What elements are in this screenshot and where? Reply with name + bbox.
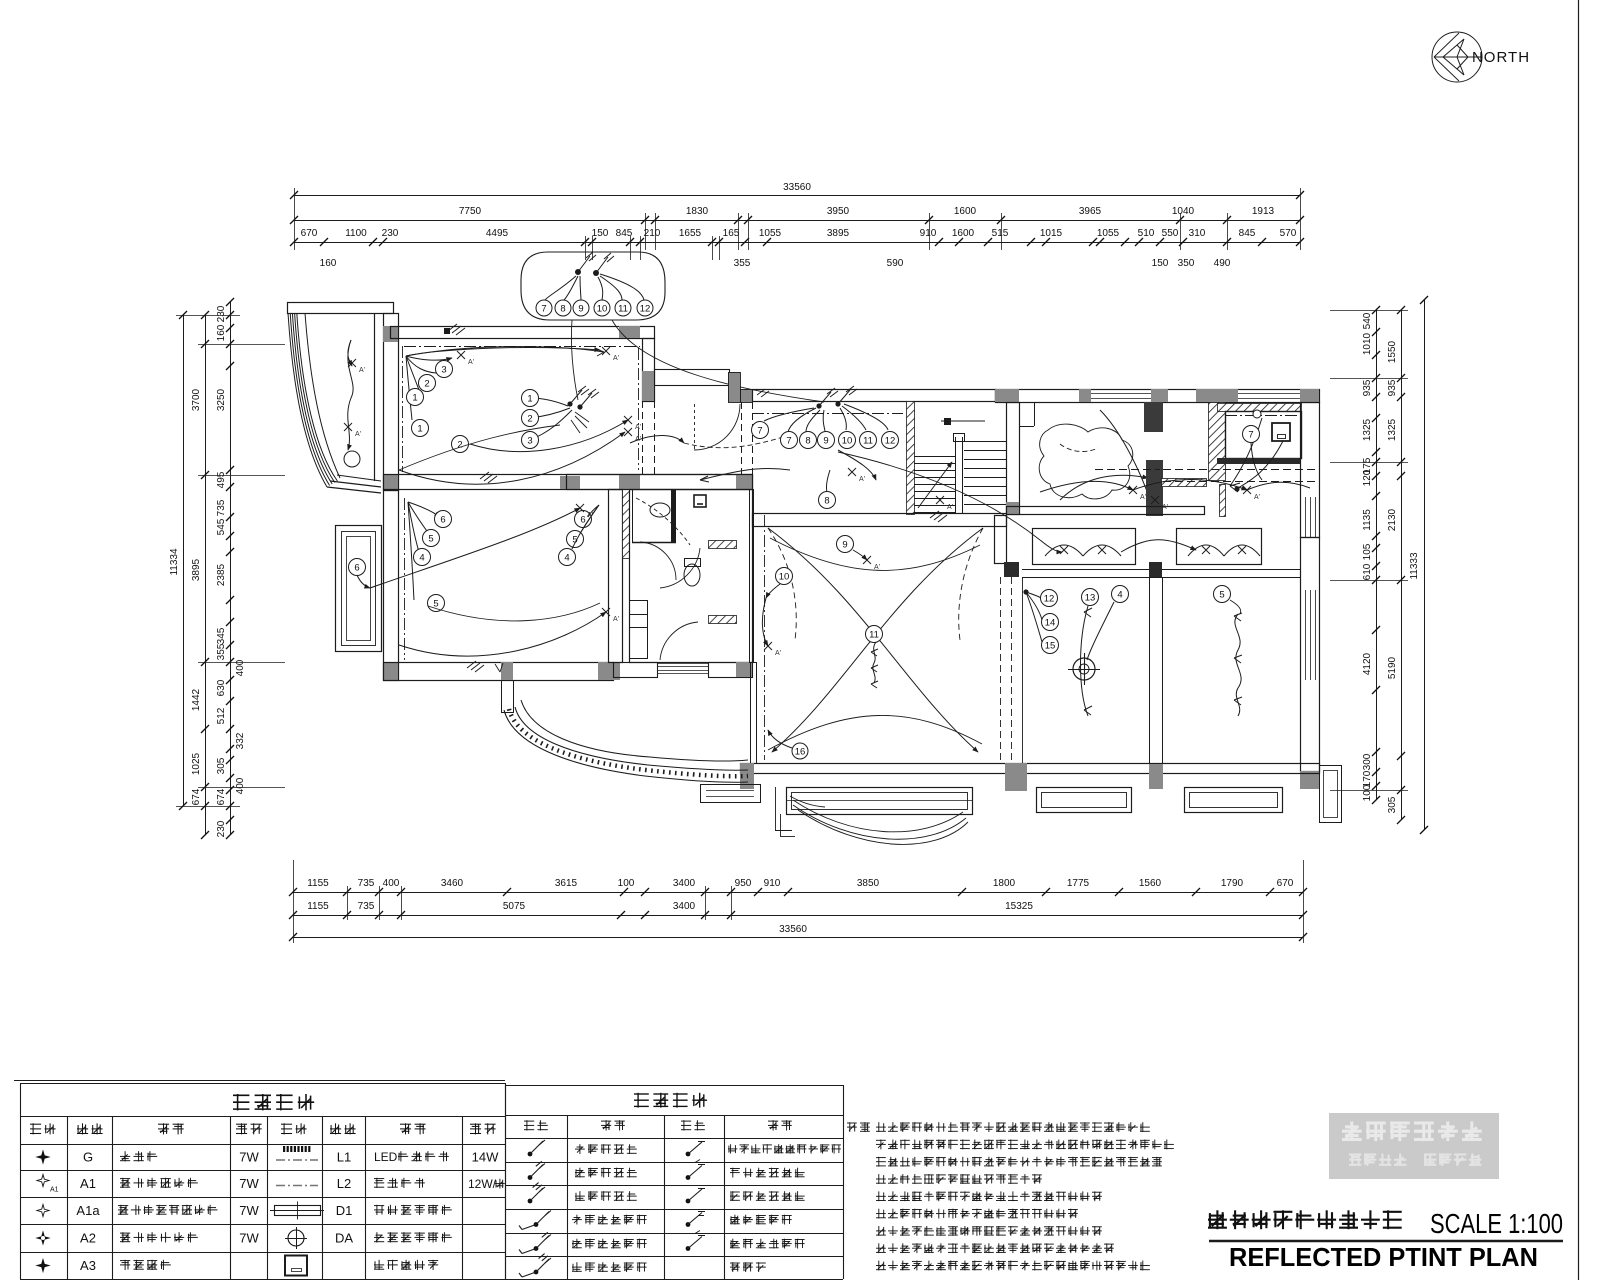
svg-text:160: 160 xyxy=(320,258,337,269)
svg-text:7750: 7750 xyxy=(459,206,482,217)
svg-text:1: 1 xyxy=(527,393,532,404)
svg-text:310: 310 xyxy=(1189,228,1206,239)
svg-text:2: 2 xyxy=(457,439,462,450)
svg-text:910: 910 xyxy=(764,878,781,889)
svg-text:1040: 1040 xyxy=(1172,206,1195,217)
svg-text:670: 670 xyxy=(301,228,318,239)
svg-text:210: 210 xyxy=(644,228,661,239)
svg-text:160: 160 xyxy=(216,324,227,341)
svg-text:550: 550 xyxy=(1162,228,1179,239)
svg-text:3: 3 xyxy=(527,435,532,446)
svg-text:3895: 3895 xyxy=(191,558,202,581)
svg-text:L2: L2 xyxy=(337,1176,351,1191)
svg-text:4: 4 xyxy=(1117,589,1122,600)
svg-text:5190: 5190 xyxy=(1387,656,1398,679)
svg-text:1775: 1775 xyxy=(1067,878,1090,889)
svg-text:2130: 2130 xyxy=(1387,508,1398,531)
svg-text:935: 935 xyxy=(1362,379,1373,396)
svg-text:DA: DA xyxy=(335,1231,353,1246)
svg-text:16: 16 xyxy=(795,746,806,757)
svg-text:7: 7 xyxy=(786,435,791,446)
svg-text:230: 230 xyxy=(216,820,227,837)
svg-text:735: 735 xyxy=(358,901,375,912)
svg-text:570: 570 xyxy=(1280,228,1297,239)
svg-text:1550: 1550 xyxy=(1387,340,1398,363)
svg-text:305: 305 xyxy=(216,757,227,774)
svg-text:305: 305 xyxy=(1387,796,1398,813)
svg-text:545: 545 xyxy=(216,518,227,535)
svg-text:12W/: 12W/ xyxy=(468,1177,497,1191)
svg-text:350: 350 xyxy=(1178,258,1195,269)
svg-text:A': A' xyxy=(468,359,474,366)
svg-text:7: 7 xyxy=(541,303,546,314)
svg-text:512: 512 xyxy=(216,707,227,724)
svg-text:400: 400 xyxy=(235,659,246,676)
svg-text:1325: 1325 xyxy=(1387,418,1398,441)
svg-text:510: 510 xyxy=(1138,228,1155,239)
svg-text:11: 11 xyxy=(869,629,879,640)
svg-text:8: 8 xyxy=(824,495,829,506)
svg-text:7W: 7W xyxy=(239,1176,259,1191)
svg-text:11333: 11333 xyxy=(1409,552,1420,580)
svg-text:1155: 1155 xyxy=(307,878,329,889)
svg-text:12: 12 xyxy=(1044,593,1055,604)
svg-text:D1: D1 xyxy=(336,1203,353,1218)
svg-text:120: 120 xyxy=(1362,469,1373,486)
svg-text:6: 6 xyxy=(440,514,445,525)
svg-text:A': A' xyxy=(1254,494,1260,501)
svg-text:345: 345 xyxy=(216,627,227,644)
svg-text:A': A' xyxy=(613,616,619,623)
svg-text:A2: A2 xyxy=(80,1231,96,1246)
svg-text:230: 230 xyxy=(216,305,227,322)
svg-text:1790: 1790 xyxy=(1221,878,1244,889)
svg-text:7: 7 xyxy=(757,425,762,436)
svg-text:735: 735 xyxy=(358,878,375,889)
svg-text:12: 12 xyxy=(640,303,651,314)
svg-text:3460: 3460 xyxy=(441,878,464,889)
svg-text:150: 150 xyxy=(1152,258,1169,269)
svg-text:935: 935 xyxy=(1387,379,1398,396)
svg-text:4495: 4495 xyxy=(486,228,509,239)
svg-text:4120: 4120 xyxy=(1362,652,1373,675)
svg-text:490: 490 xyxy=(1214,258,1231,269)
svg-text:A': A' xyxy=(359,367,365,374)
svg-text:674: 674 xyxy=(216,788,227,805)
svg-text:15325: 15325 xyxy=(1005,901,1033,912)
svg-text:8: 8 xyxy=(560,303,565,314)
svg-text:1010: 1010 xyxy=(1362,332,1373,355)
svg-text:1600: 1600 xyxy=(952,228,975,239)
svg-text:A1: A1 xyxy=(50,1187,59,1194)
svg-text:G: G xyxy=(83,1150,93,1165)
svg-text:13: 13 xyxy=(1085,592,1096,603)
svg-text:674: 674 xyxy=(191,788,202,805)
svg-text:495: 495 xyxy=(216,471,227,488)
svg-text:165: 165 xyxy=(723,228,740,239)
svg-text:5: 5 xyxy=(428,533,433,544)
svg-text:1055: 1055 xyxy=(1097,228,1120,239)
svg-text:150: 150 xyxy=(592,228,609,239)
svg-text:A': A' xyxy=(859,476,865,483)
svg-text:1560: 1560 xyxy=(1139,878,1162,889)
svg-text:LED: LED xyxy=(374,1150,398,1164)
svg-text:670: 670 xyxy=(1277,878,1294,889)
svg-text:1913: 1913 xyxy=(1252,206,1275,217)
svg-text:14: 14 xyxy=(1045,617,1056,628)
svg-text:1325: 1325 xyxy=(1362,418,1373,441)
svg-text:15: 15 xyxy=(1045,640,1056,651)
svg-text:14W: 14W xyxy=(472,1150,499,1165)
svg-text:105: 105 xyxy=(1362,543,1373,560)
svg-text:3965: 3965 xyxy=(1079,206,1102,217)
svg-text:A': A' xyxy=(613,355,619,362)
svg-text:3: 3 xyxy=(441,364,446,375)
svg-text:1442: 1442 xyxy=(191,688,202,711)
svg-text:1600: 1600 xyxy=(954,206,977,217)
svg-text:A1a: A1a xyxy=(76,1203,100,1218)
svg-text:5: 5 xyxy=(1219,589,1224,600)
svg-text:A': A' xyxy=(635,436,641,443)
svg-text:355: 355 xyxy=(734,258,751,269)
svg-text:2385: 2385 xyxy=(216,563,227,586)
svg-text:230: 230 xyxy=(382,228,399,239)
svg-text:735: 735 xyxy=(216,499,227,516)
svg-text:9: 9 xyxy=(578,303,583,314)
svg-text:630: 630 xyxy=(216,679,227,696)
svg-text:9: 9 xyxy=(842,539,847,550)
svg-text:3700: 3700 xyxy=(191,388,202,411)
svg-text:4: 4 xyxy=(564,552,569,563)
svg-text:515: 515 xyxy=(992,228,1009,239)
svg-text:A1: A1 xyxy=(80,1176,96,1191)
svg-text:10: 10 xyxy=(779,571,790,582)
svg-text:SCALE 1:100: SCALE 1:100 xyxy=(1430,1208,1563,1239)
svg-text:1025: 1025 xyxy=(191,752,202,775)
svg-text:300: 300 xyxy=(1362,753,1373,770)
svg-text:590: 590 xyxy=(887,258,904,269)
svg-text:3850: 3850 xyxy=(857,878,880,889)
svg-text:6: 6 xyxy=(580,514,585,525)
svg-text:7W: 7W xyxy=(239,1231,259,1246)
svg-text:400: 400 xyxy=(383,878,400,889)
svg-text:3400: 3400 xyxy=(673,901,696,912)
svg-text:910: 910 xyxy=(920,228,937,239)
svg-text:A': A' xyxy=(1140,494,1146,501)
svg-text:4: 4 xyxy=(419,552,424,563)
svg-text:1: 1 xyxy=(417,423,422,434)
svg-text:L1: L1 xyxy=(337,1150,351,1165)
svg-text:845: 845 xyxy=(1239,228,1256,239)
svg-text:1155: 1155 xyxy=(307,901,329,912)
svg-text:5075: 5075 xyxy=(503,901,526,912)
svg-text:A': A' xyxy=(947,504,953,511)
svg-text:332: 332 xyxy=(235,732,246,749)
svg-text:A': A' xyxy=(775,650,781,657)
svg-text:10: 10 xyxy=(597,303,608,314)
svg-text:1655: 1655 xyxy=(679,228,702,239)
svg-text:7W: 7W xyxy=(239,1203,259,1218)
svg-text:3250: 3250 xyxy=(216,388,227,411)
svg-text:33560: 33560 xyxy=(779,924,807,935)
svg-text:A': A' xyxy=(587,512,593,519)
svg-text:7W: 7W xyxy=(239,1150,259,1165)
svg-text:3615: 3615 xyxy=(555,878,578,889)
svg-text:3950: 3950 xyxy=(827,206,850,217)
svg-text:A': A' xyxy=(1162,504,1168,511)
svg-text:8: 8 xyxy=(805,435,810,446)
svg-text:355: 355 xyxy=(216,643,227,660)
svg-text:11: 11 xyxy=(863,435,873,446)
svg-text:6: 6 xyxy=(354,562,359,573)
svg-text:1800: 1800 xyxy=(993,878,1016,889)
svg-text:NORTH: NORTH xyxy=(1472,49,1530,66)
svg-text:10: 10 xyxy=(842,435,853,446)
svg-text:A3: A3 xyxy=(80,1258,96,1273)
svg-text:400: 400 xyxy=(235,777,246,794)
svg-text:1015: 1015 xyxy=(1040,228,1063,239)
svg-text:1135: 1135 xyxy=(1362,509,1373,531)
svg-text:A': A' xyxy=(355,431,361,438)
svg-text:3400: 3400 xyxy=(673,878,696,889)
svg-text:A': A' xyxy=(874,564,880,571)
svg-text:33560: 33560 xyxy=(783,182,811,193)
svg-text:2: 2 xyxy=(424,378,429,389)
svg-text:A': A' xyxy=(635,424,641,431)
svg-text:1830: 1830 xyxy=(686,206,709,217)
svg-text:REFLECTED PTINT PLAN: REFLECTED PTINT PLAN xyxy=(1229,1242,1538,1272)
svg-text:100: 100 xyxy=(1362,784,1373,801)
svg-text:3895: 3895 xyxy=(827,228,850,239)
svg-text:540: 540 xyxy=(1362,312,1373,329)
svg-text:7: 7 xyxy=(1248,429,1253,440)
svg-text:1: 1 xyxy=(412,392,417,403)
svg-text:1055: 1055 xyxy=(759,228,782,239)
svg-text:11334: 11334 xyxy=(169,548,180,576)
svg-text:610: 610 xyxy=(1362,563,1373,580)
svg-text:1100: 1100 xyxy=(345,228,367,239)
svg-text:9: 9 xyxy=(823,435,828,446)
svg-text:950: 950 xyxy=(735,878,752,889)
svg-text:12: 12 xyxy=(885,435,896,446)
svg-text:11: 11 xyxy=(618,303,628,314)
svg-text:100: 100 xyxy=(618,878,635,889)
svg-text:2: 2 xyxy=(527,413,532,424)
